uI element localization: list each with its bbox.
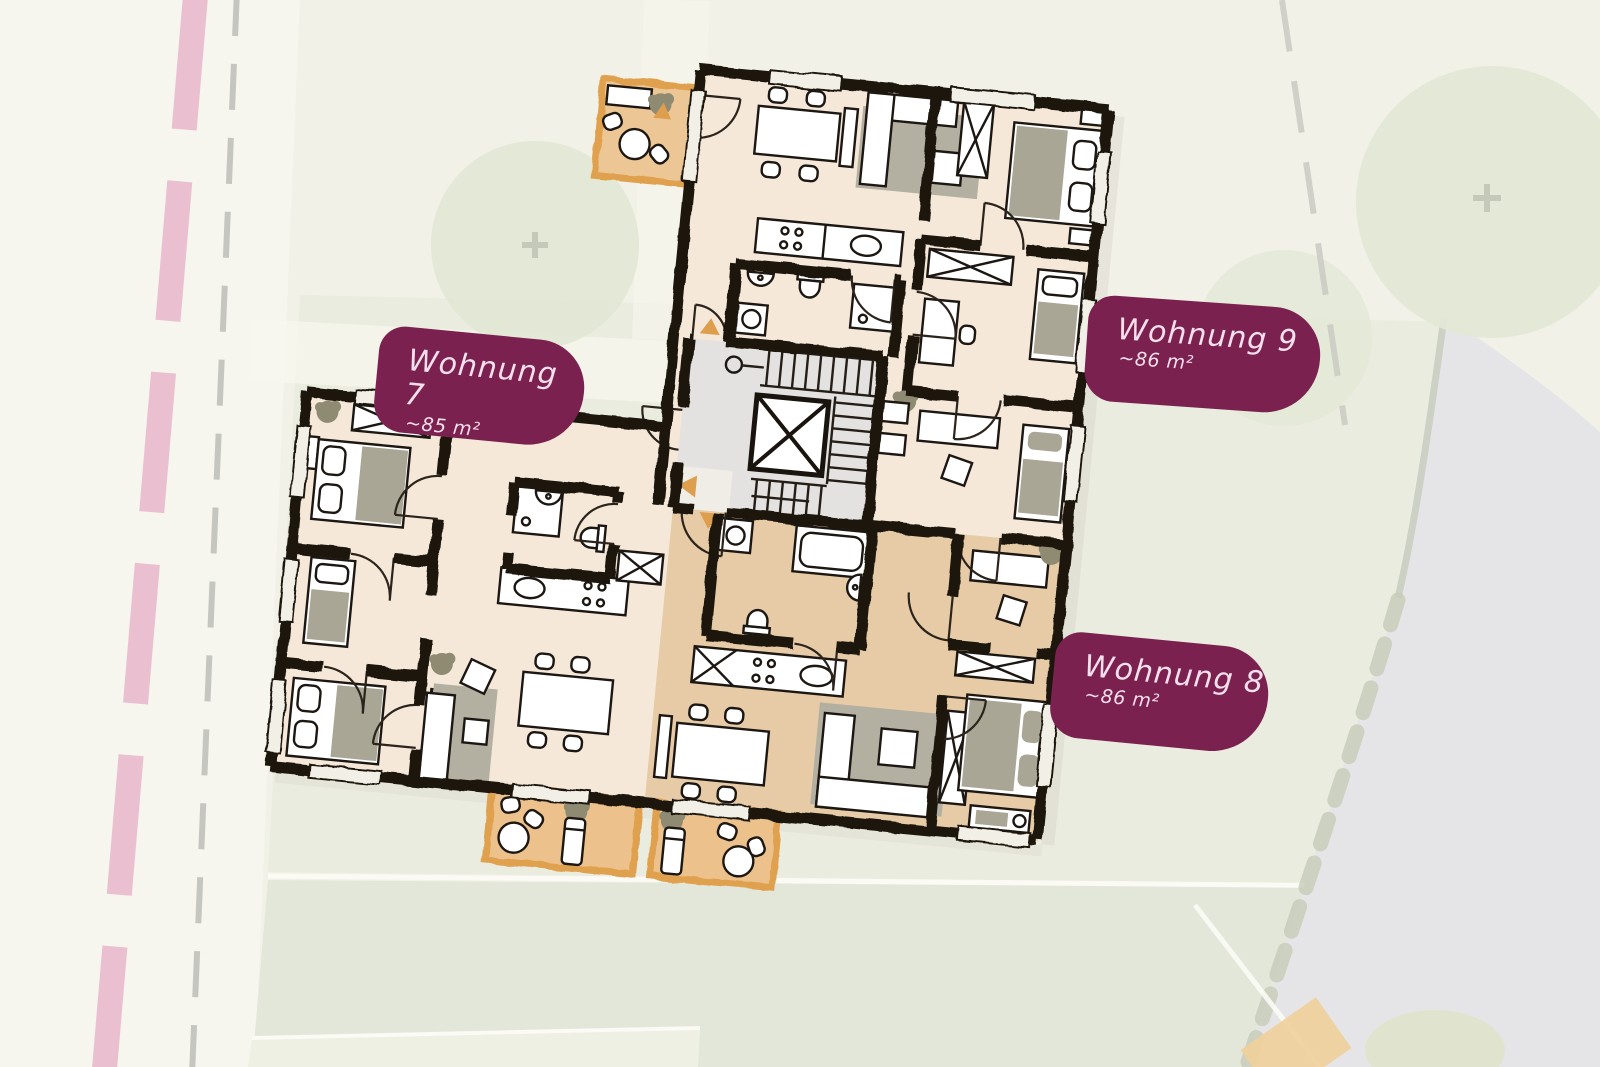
chair	[689, 704, 708, 721]
lounger	[661, 827, 685, 875]
apartment-label-wohnung-9[interactable]: Wohnung 9 ~86 m²	[1083, 294, 1324, 416]
chair	[681, 783, 700, 800]
chair	[959, 325, 976, 344]
chair	[725, 707, 744, 724]
wardrobe	[617, 551, 664, 585]
single-bed	[1014, 425, 1069, 523]
chair	[761, 161, 780, 178]
desk	[919, 299, 959, 366]
elevator-icon	[750, 395, 829, 476]
bathroom-fixture	[878, 433, 906, 455]
apartment-label-wohnung-8[interactable]: Wohnung 8 ~86 m²	[1047, 630, 1272, 756]
dining-table	[754, 106, 840, 162]
dining-table	[672, 723, 769, 786]
chair	[717, 786, 736, 803]
chair	[535, 653, 554, 670]
coffee-table	[878, 728, 917, 767]
floor-plan-canvas	[0, 0, 1600, 1067]
chair	[563, 735, 582, 752]
wardrobe	[957, 101, 994, 178]
washing-machine	[735, 303, 768, 336]
bathroom-fixture	[881, 401, 909, 423]
desk	[917, 411, 1000, 449]
double-bed	[286, 678, 385, 764]
coffee-table	[462, 718, 488, 744]
chair	[571, 656, 590, 673]
desk	[970, 550, 1049, 587]
bathtub	[792, 525, 870, 578]
single-bed	[303, 557, 355, 647]
chair	[806, 90, 825, 107]
chair	[768, 87, 787, 104]
site-plan: Wohnung 7 ~85 m² Wohnung 9 ~86 m² Wohnun…	[0, 0, 1600, 1067]
lounger	[561, 818, 585, 866]
dining-table	[518, 672, 613, 734]
bench	[606, 85, 652, 108]
double-bed	[1005, 122, 1104, 226]
apartment-label-wohnung-7[interactable]: Wohnung 7 ~85 m²	[371, 324, 588, 449]
chair	[527, 732, 546, 749]
single-bed	[1030, 269, 1084, 363]
chair	[799, 165, 818, 182]
shower	[850, 284, 898, 332]
